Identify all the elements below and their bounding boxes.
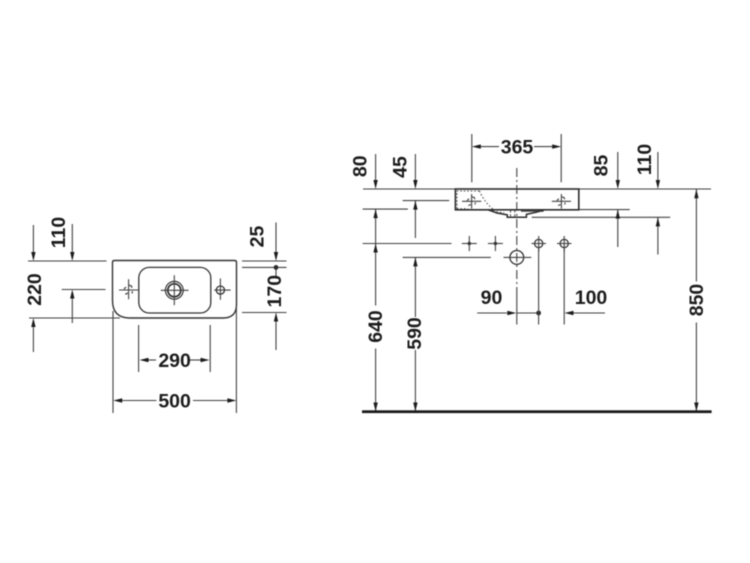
svg-text:850: 850 [686,284,708,317]
svg-text:110: 110 [48,217,70,249]
svg-text:85: 85 [591,155,613,177]
svg-text:290: 290 [158,350,191,372]
svg-text:500: 500 [158,391,191,413]
svg-text:170: 170 [264,275,286,308]
svg-text:220: 220 [24,273,46,306]
svg-text:25: 25 [247,226,269,248]
svg-text:45: 45 [390,156,412,178]
svg-text:90: 90 [481,287,503,309]
svg-text:640: 640 [365,310,387,343]
svg-text:100: 100 [575,287,608,309]
svg-text:110: 110 [634,144,656,176]
svg-text:365: 365 [501,137,534,159]
svg-text:80: 80 [350,155,372,177]
svg-text:590: 590 [404,317,426,350]
